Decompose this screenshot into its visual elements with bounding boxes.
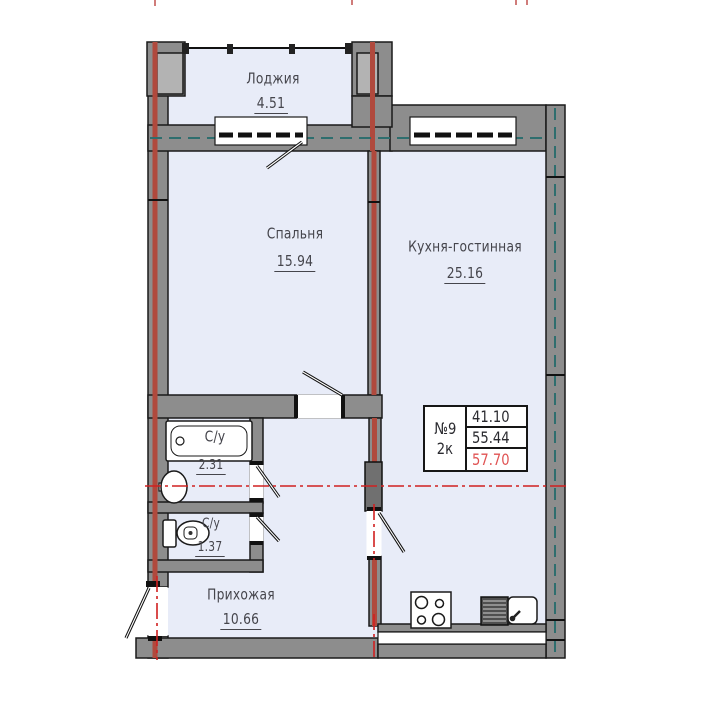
wall-wc-bottom bbox=[148, 560, 263, 572]
total-area-with-loggia-cell: 57.70 bbox=[467, 449, 526, 470]
entrance-door-leaf bbox=[126, 588, 149, 638]
wall-between-bathrooms bbox=[148, 502, 263, 513]
wall-exterior-bottom-kitchen-outer bbox=[378, 644, 546, 658]
apartment-id-cell: №9 2к bbox=[425, 407, 467, 470]
hallway-area: 10.66 bbox=[220, 612, 261, 630]
kitchen-window-top bbox=[410, 117, 516, 145]
apartment-number: №9 bbox=[434, 419, 456, 438]
apartment-info-table: №9 2к 41.10 55.44 57.70 bbox=[423, 405, 528, 472]
wall-bedroom-bottom bbox=[148, 395, 382, 418]
wall-exterior-bottom-hall bbox=[136, 638, 378, 658]
kitchen-living-area: 25.16 bbox=[444, 266, 485, 284]
bedroom-area: 15.94 bbox=[274, 254, 315, 272]
kitchen-window-bottom bbox=[378, 632, 546, 644]
bedroom-label: Спальня bbox=[267, 227, 323, 242]
bedroom-door-opening bbox=[294, 395, 345, 419]
loggia-label: Лоджия bbox=[246, 72, 299, 87]
loggia-area: 4.51 bbox=[254, 96, 287, 114]
glazing-mullion bbox=[289, 44, 295, 54]
total-area-cell: 55.44 bbox=[467, 428, 526, 449]
living-area-cell: 41.10 bbox=[467, 407, 526, 428]
pillar-left-inner bbox=[157, 53, 183, 94]
bathroom-area: 2.31 bbox=[196, 459, 226, 475]
bathroom-label: С/у bbox=[205, 430, 226, 445]
glazing-mullion bbox=[227, 44, 233, 54]
hallway-label: Прихожая bbox=[207, 588, 275, 603]
dimension-ticks bbox=[155, 0, 527, 6]
wall-exterior-bottom-kitchen-inner bbox=[378, 624, 546, 632]
kitchen-sink bbox=[481, 597, 537, 625]
kitchen-living-label: Кухня-гостинная bbox=[408, 240, 522, 255]
wc-area: 1.37 bbox=[195, 541, 225, 557]
floorplan-page: Лоджия 4.51 Спальня 15.94 Кухня-гостинна… bbox=[0, 0, 706, 706]
floorplan-drawing bbox=[0, 0, 706, 706]
balcony-door-window bbox=[215, 117, 307, 145]
glazing-post bbox=[182, 43, 189, 54]
loggia-floor bbox=[163, 48, 372, 128]
apartment-rooms-count: 2к bbox=[437, 439, 453, 458]
wc-label: С/у bbox=[202, 518, 220, 531]
stove bbox=[411, 592, 451, 628]
glazing-post bbox=[345, 43, 352, 54]
